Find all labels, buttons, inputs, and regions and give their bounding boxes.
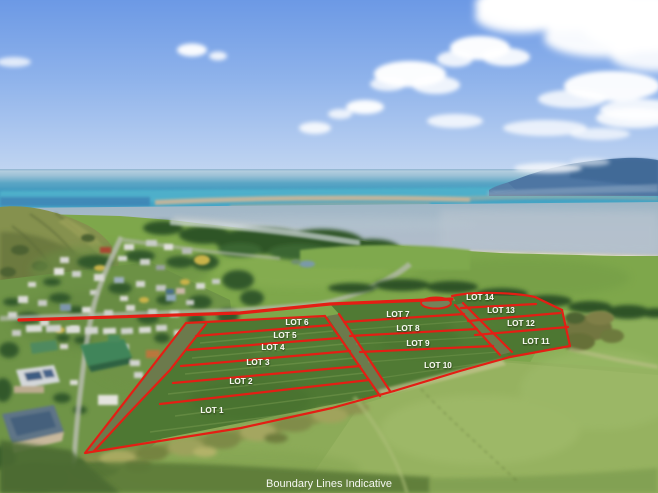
svg-text:LOT 3: LOT 3 [246, 358, 270, 367]
svg-text:LOT 12: LOT 12 [507, 319, 535, 328]
svg-text:LOT 13: LOT 13 [487, 306, 515, 315]
svg-text:LOT 10: LOT 10 [424, 361, 452, 370]
svg-text:LOT 7: LOT 7 [386, 310, 410, 319]
svg-text:LOT 5: LOT 5 [273, 331, 297, 340]
svg-text:Boundary Lines Indicative: Boundary Lines Indicative [266, 478, 392, 490]
svg-text:LOT 8: LOT 8 [396, 324, 420, 333]
svg-text:LOT 1: LOT 1 [200, 406, 224, 415]
svg-text:LOT 9: LOT 9 [406, 339, 430, 348]
svg-text:LOT 6: LOT 6 [285, 318, 309, 327]
svg-text:LOT 11: LOT 11 [522, 337, 550, 346]
svg-text:LOT 14: LOT 14 [466, 293, 494, 302]
svg-text:LOT 2: LOT 2 [229, 377, 253, 386]
svg-text:LOT 4: LOT 4 [261, 343, 285, 352]
